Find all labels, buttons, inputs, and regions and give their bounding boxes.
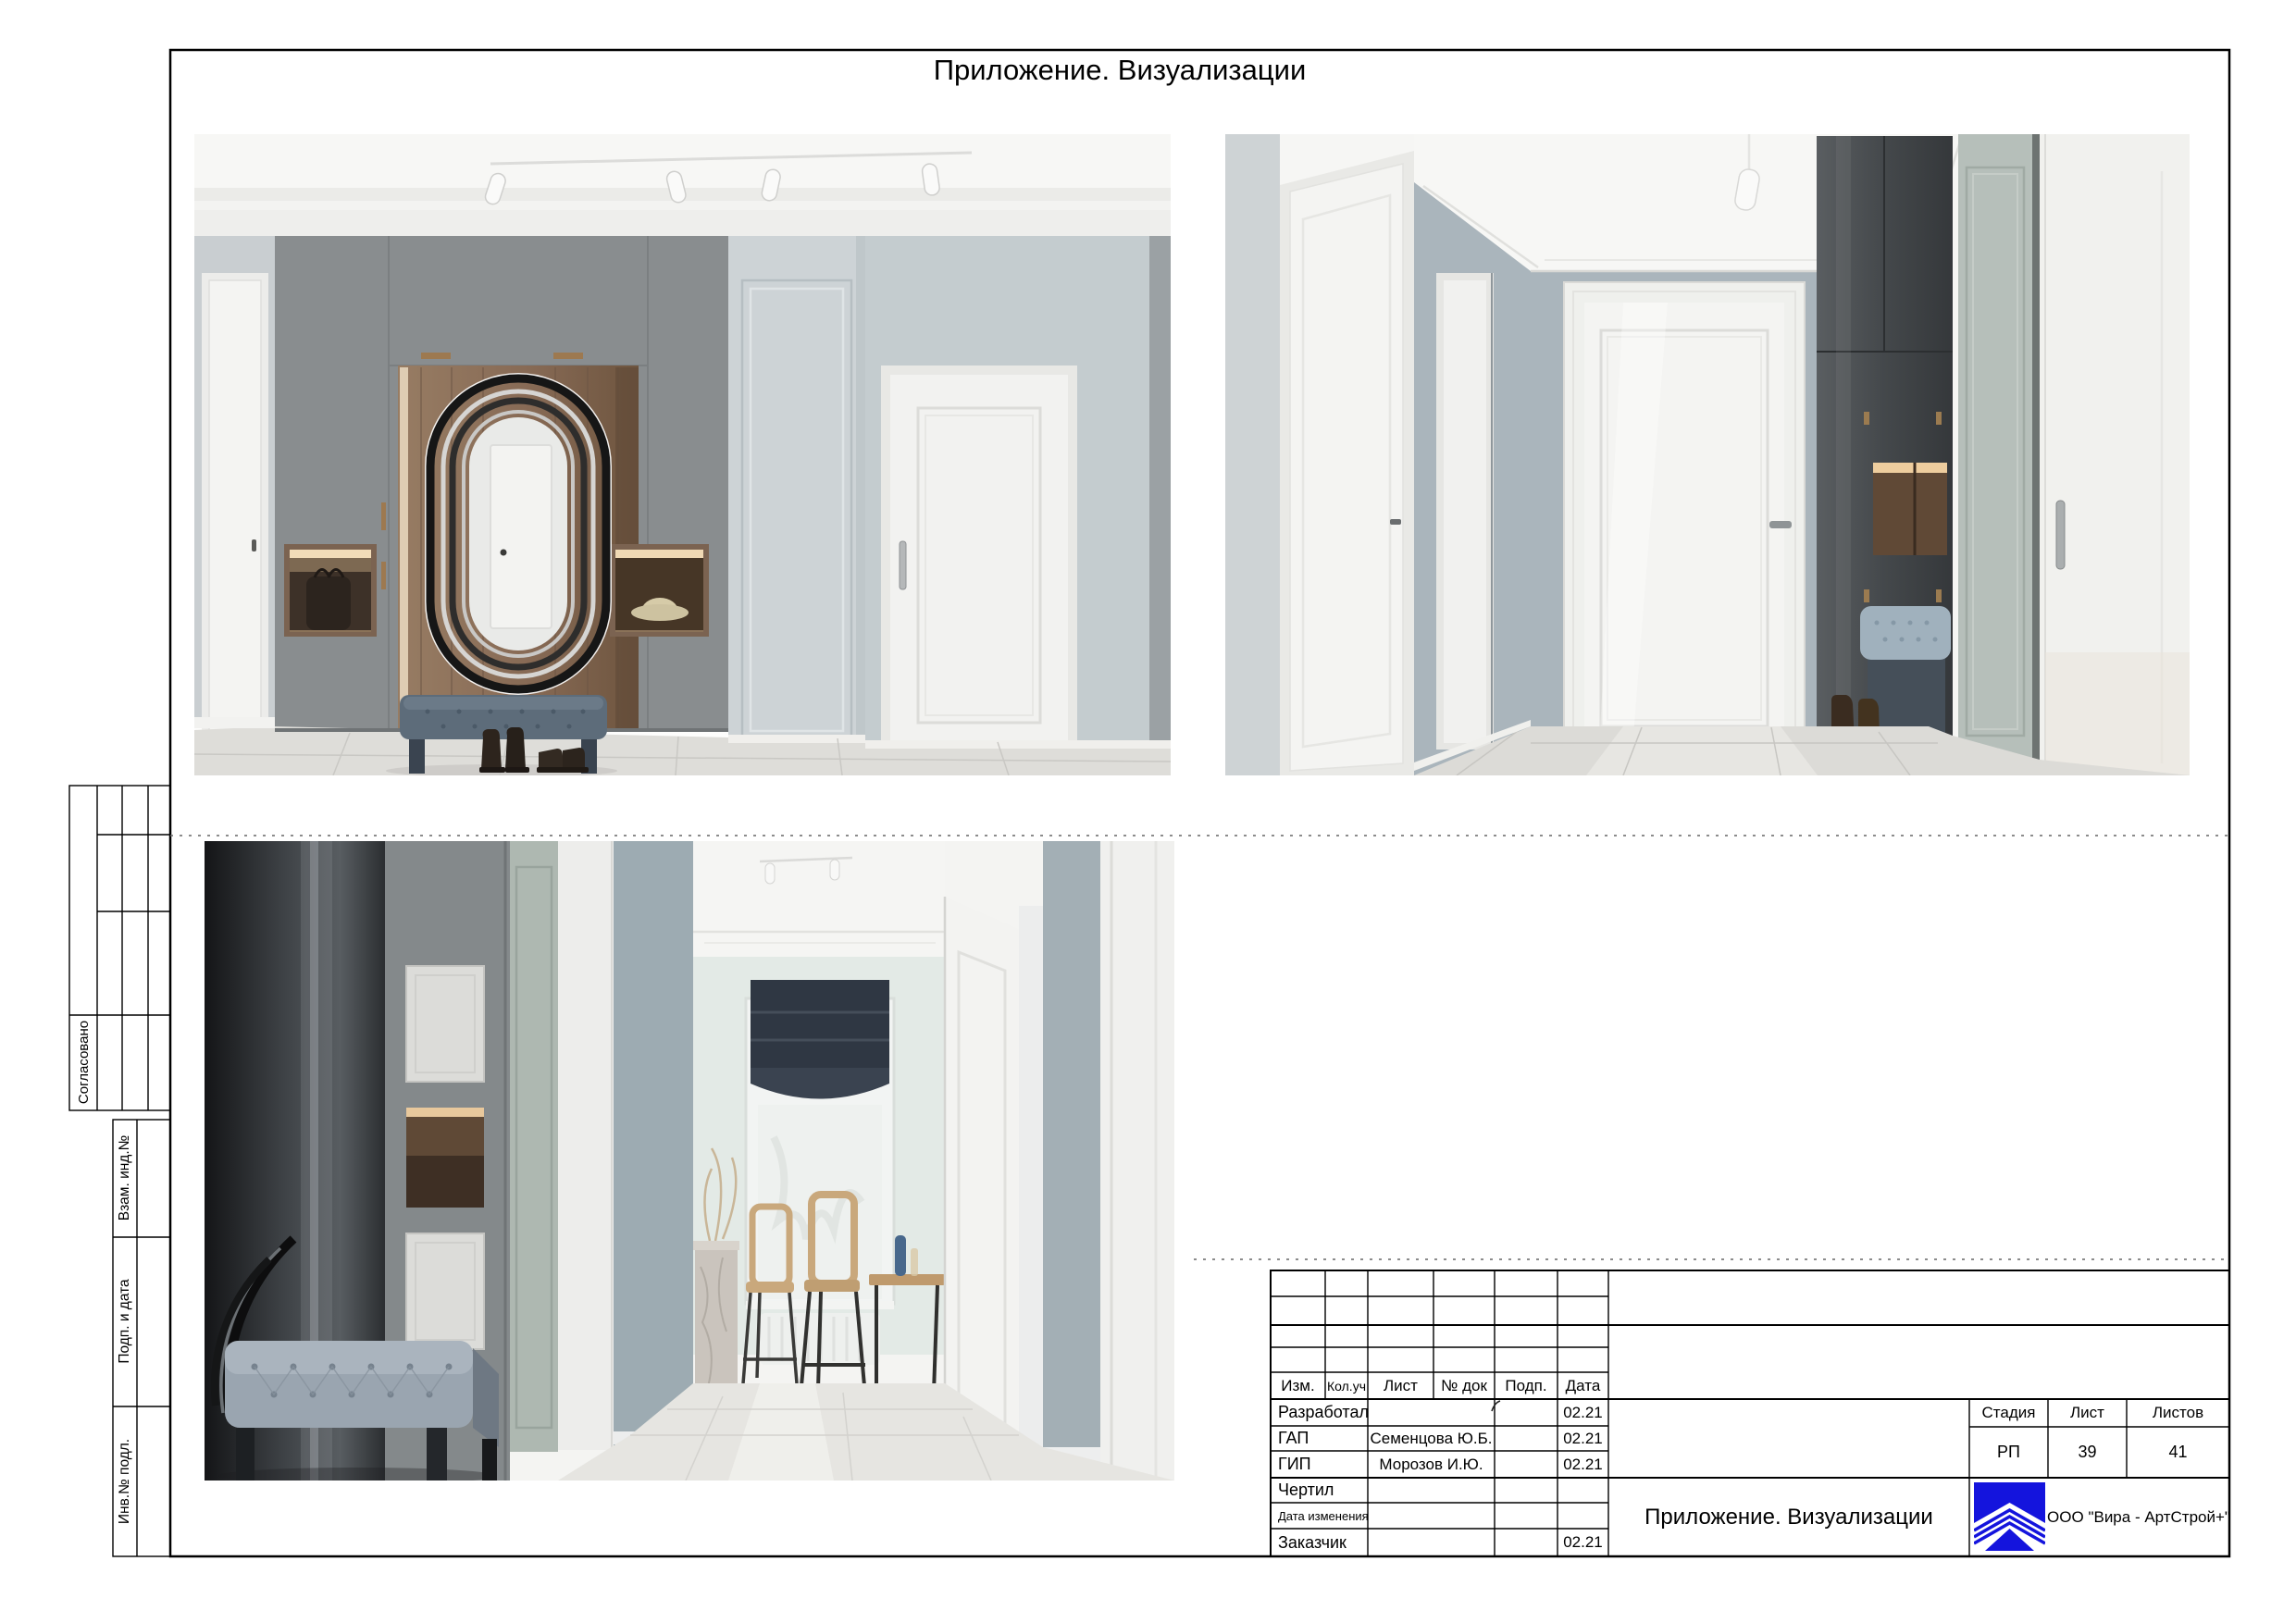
sheets-label: Листов	[2127, 1399, 2229, 1427]
company-logo	[1974, 1482, 2045, 1555]
row-customer-date: 02.21	[1558, 1529, 1608, 1556]
sheet-label: Лист	[2048, 1399, 2127, 1427]
row-gap-date: 02.21	[1558, 1426, 1608, 1451]
page-title: Приложение. Визуализации	[170, 53, 2069, 88]
podp-data-label: Подп. и дата	[116, 1229, 134, 1414]
row-change-date-role: Дата изменения	[1278, 1503, 1371, 1529]
rendering-corridor-view	[1225, 134, 2190, 775]
drawing-sheet: Приложение. Визуализации Согласовано Вза…	[0, 0, 2296, 1623]
niche-bag	[284, 544, 377, 637]
paneled-column	[728, 236, 865, 745]
stage-value: РП	[1969, 1427, 2048, 1478]
approved-vertical-label: Согласовано	[74, 970, 93, 1155]
stage-label: Стадия	[1969, 1399, 2048, 1427]
sliding-door-right	[2040, 134, 2190, 775]
doc-title: Приложение. Визуализации	[1608, 1478, 1969, 1556]
row-gap-name: Семенцова Ю.Б.	[1368, 1426, 1495, 1451]
rendering-hallway-to-dining-view	[205, 841, 1174, 1481]
col-doc: № док	[1433, 1372, 1495, 1399]
row-gip-role: ГИП	[1278, 1451, 1371, 1478]
niche-hat	[610, 544, 709, 637]
row-customer-role: Заказчик	[1278, 1529, 1371, 1556]
white-paneled-wall	[1100, 841, 1174, 1481]
row-developer-role: Разработал	[1278, 1399, 1371, 1426]
sage-column	[510, 841, 558, 1452]
rendering-entry-hall-front-view	[194, 134, 1171, 775]
row-gip-name: Морозов И.Ю.	[1368, 1451, 1495, 1478]
col-koluch: Кол.уч	[1325, 1372, 1368, 1399]
recessed-door	[1436, 273, 1494, 750]
col-list: Лист	[1368, 1372, 1433, 1399]
sheet-value: 39	[2048, 1427, 2127, 1478]
main-door	[1564, 282, 1805, 750]
col-podp: Подп.	[1495, 1372, 1558, 1399]
row-chertil-role: Чертил	[1278, 1478, 1371, 1503]
sheets-value: 41	[2127, 1427, 2229, 1478]
row-gip-date: 02.21	[1558, 1451, 1608, 1478]
open-door-left	[1280, 151, 1414, 775]
row-developer-date: 02.21	[1558, 1399, 1608, 1426]
col-izm: Изм.	[1271, 1372, 1325, 1399]
company-name: ООО "Вира - АртСтрой+"	[2051, 1478, 2227, 1556]
inv-podl-label: Инв.№ подл.	[116, 1389, 134, 1574]
row-gap-role: ГАП	[1278, 1426, 1371, 1451]
open-door-right	[945, 897, 1043, 1480]
sage-column	[1958, 134, 2040, 775]
col-data: Дата	[1558, 1372, 1608, 1399]
white-door-right	[881, 365, 1077, 758]
